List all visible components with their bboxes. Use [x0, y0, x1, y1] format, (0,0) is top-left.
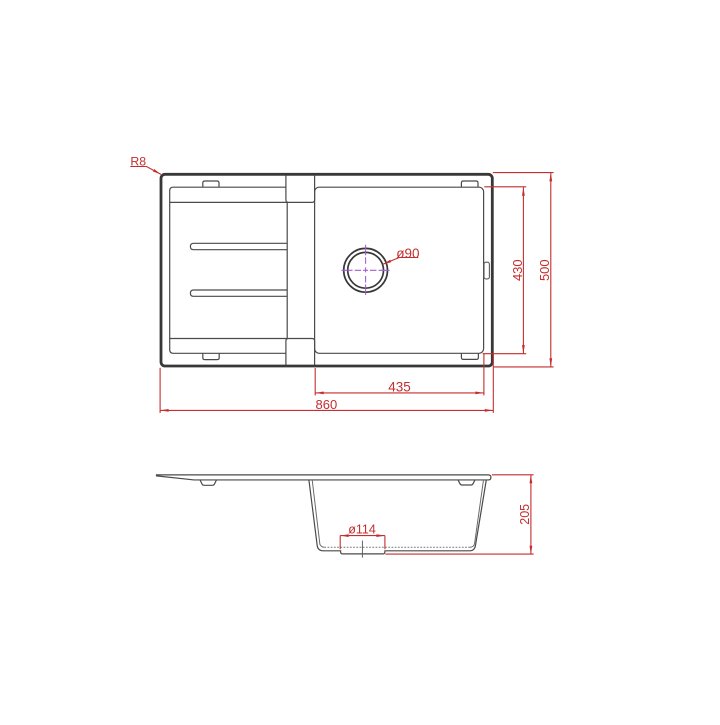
svg-text:435: 435 [388, 379, 411, 394]
svg-text:430: 430 [510, 259, 525, 281]
svg-text:500: 500 [537, 259, 552, 281]
svg-text:ø90: ø90 [396, 246, 419, 261]
svg-text:ø114: ø114 [348, 522, 376, 536]
svg-text:205: 205 [518, 504, 532, 525]
svg-text:860: 860 [316, 397, 338, 412]
